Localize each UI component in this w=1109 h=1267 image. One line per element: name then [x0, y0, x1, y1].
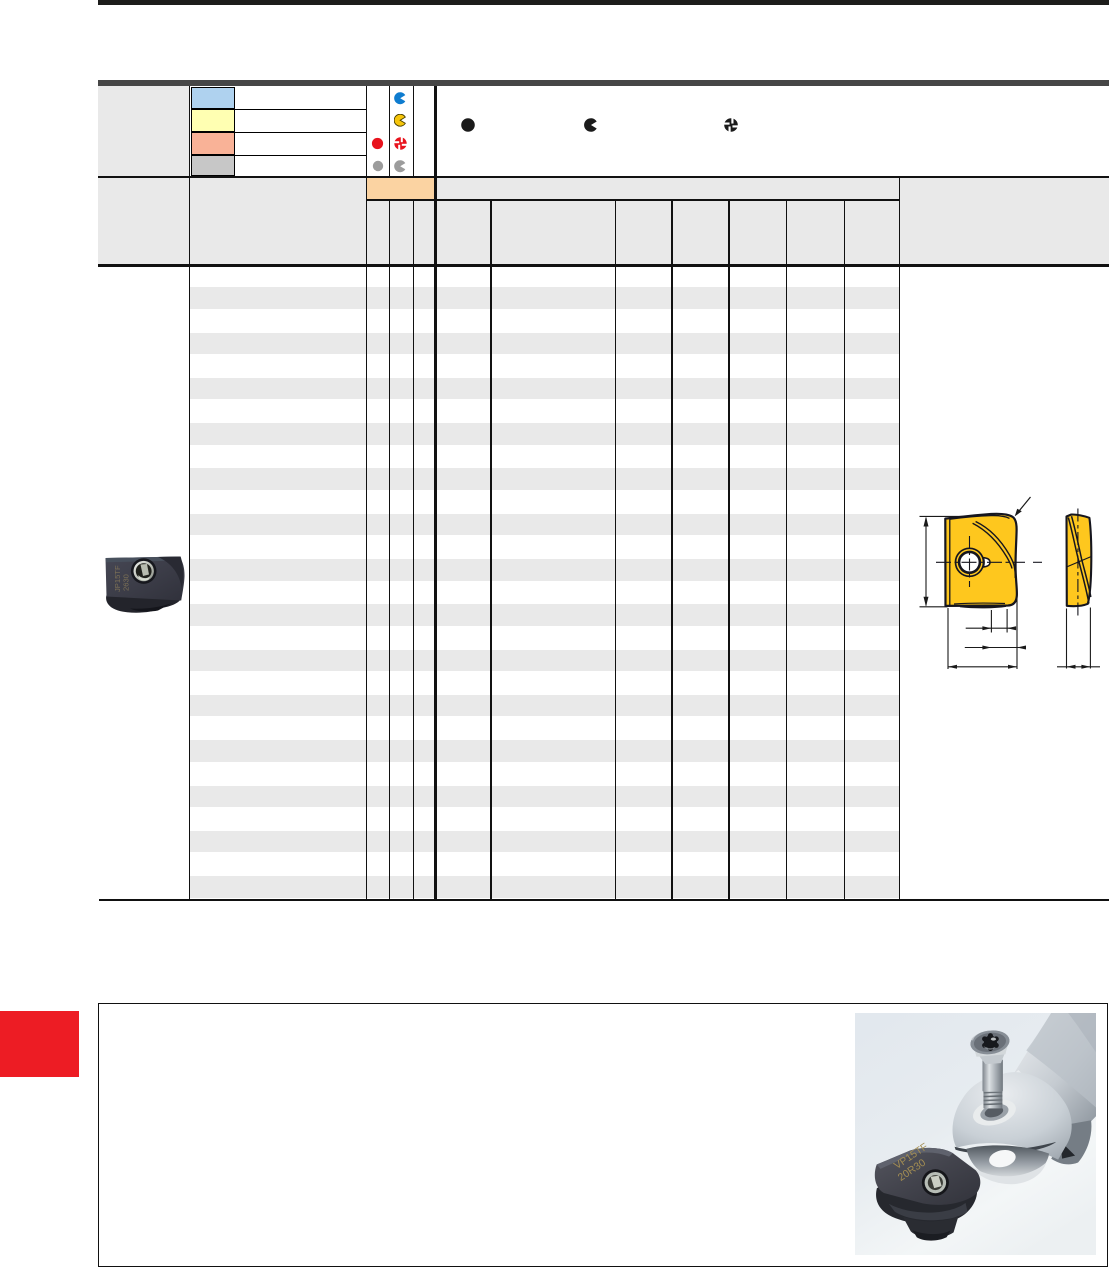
svg-text:2630: 2630	[122, 574, 131, 591]
